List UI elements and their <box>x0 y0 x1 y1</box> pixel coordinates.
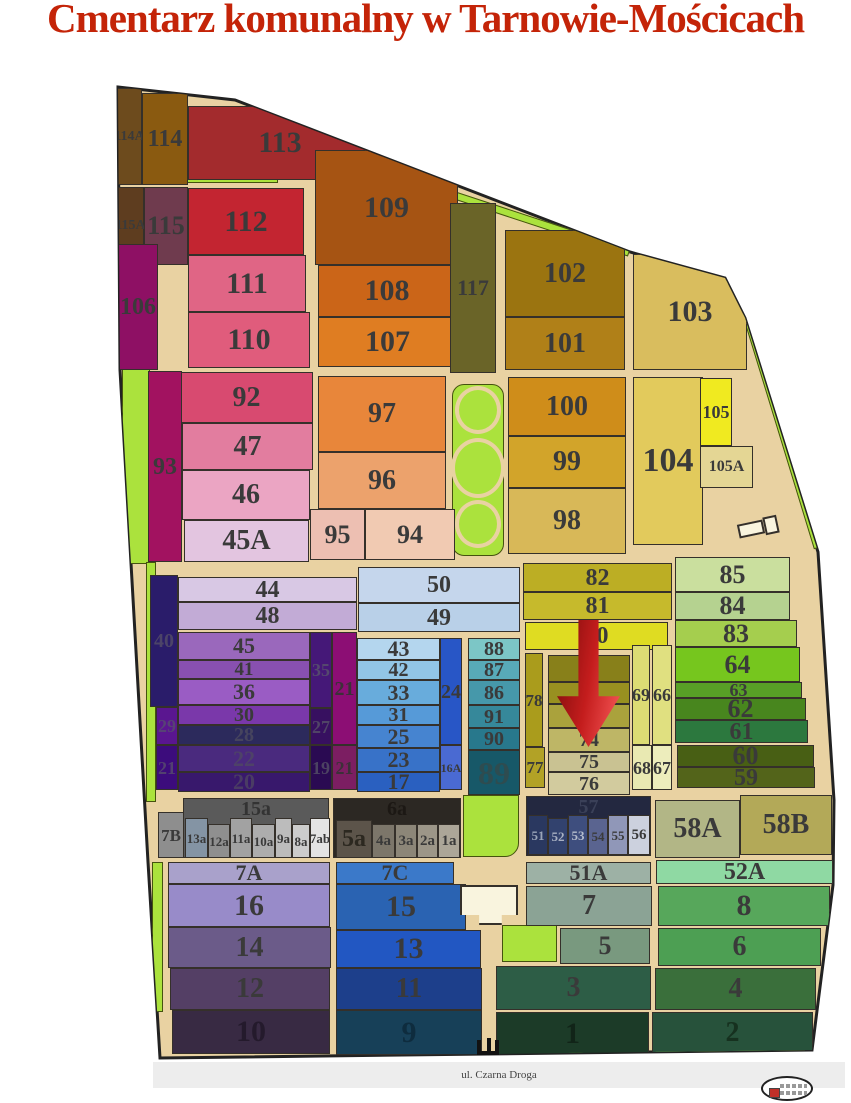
section-31[interactable]: 31 <box>357 705 440 725</box>
section-62[interactable]: 62 <box>675 698 806 720</box>
section-label: 20 <box>233 771 255 793</box>
section-label: 112 <box>224 207 267 237</box>
section-label: 23 <box>388 749 410 771</box>
section-label: 98 <box>553 507 581 535</box>
section-56[interactable]: 56 <box>628 815 650 855</box>
section-92[interactable]: 92 <box>180 372 313 423</box>
section-label: 24 <box>441 682 461 702</box>
section-label: 51A <box>570 862 608 884</box>
counter-badge-digits <box>780 1084 807 1088</box>
section-84[interactable]: 84 <box>675 592 790 620</box>
section-15[interactable]: 15 <box>336 884 466 930</box>
section-label: 22 <box>233 748 255 770</box>
section-91[interactable]: 91 <box>468 705 520 728</box>
section-label: 45A <box>222 527 270 555</box>
section-46[interactable]: 46 <box>182 470 310 520</box>
section-69[interactable]: 69 <box>632 645 650 745</box>
section-label: 69 <box>632 686 650 704</box>
section-9[interactable]: 9 <box>336 1010 482 1055</box>
section-label: 49 <box>427 606 451 630</box>
section-44[interactable]: 44 <box>178 577 357 602</box>
section-41[interactable]: 41 <box>178 660 310 679</box>
section-45[interactable]: 45 <box>178 632 310 660</box>
section-55[interactable]: 55 <box>608 815 628 855</box>
section-110[interactable]: 110 <box>188 312 310 368</box>
section-7A[interactable]: 7A <box>168 862 330 884</box>
section-13[interactable]: 13 <box>336 930 481 968</box>
section-68[interactable]: 68 <box>632 745 652 790</box>
section-114[interactable]: 114 <box>142 93 188 185</box>
section-4a[interactable]: 4a <box>372 824 395 858</box>
section-label: 103 <box>668 297 713 327</box>
section-label: 31 <box>389 705 409 725</box>
section-22[interactable]: 22 <box>178 745 310 772</box>
section-42[interactable]: 42 <box>357 660 440 680</box>
green-roundabout <box>455 386 501 434</box>
section-label: 5a <box>342 827 366 851</box>
section-label: 101 <box>544 330 586 358</box>
section-label: 13a <box>187 832 207 845</box>
section-106[interactable]: 106 <box>118 244 158 370</box>
section-96[interactable]: 96 <box>318 452 446 509</box>
section-label: 97 <box>368 400 396 428</box>
section-label: 57 <box>579 797 599 817</box>
section-label: 55 <box>612 829 625 842</box>
section-12[interactable]: 12 <box>170 968 330 1010</box>
section-label: 40 <box>154 631 174 651</box>
building <box>762 515 779 536</box>
section-86[interactable]: 86 <box>468 680 520 705</box>
section-label: 58B <box>763 811 810 839</box>
gate-icon <box>477 1040 499 1055</box>
section-7ab[interactable]: 7ab <box>310 818 330 858</box>
section-112[interactable]: 112 <box>188 188 304 255</box>
section-label: 81 <box>586 594 610 618</box>
section-16[interactable]: 16 <box>168 884 330 927</box>
section-label: 76 <box>579 774 599 794</box>
section-label: 100 <box>546 393 588 421</box>
section-label: 12a <box>209 835 229 848</box>
section-20[interactable]: 20 <box>178 772 310 792</box>
section-10[interactable]: 10 <box>172 1010 330 1054</box>
section-label: 64 <box>725 652 751 678</box>
section-2[interactable]: 2 <box>652 1012 813 1053</box>
section-label: 102 <box>544 260 586 288</box>
section-label: 115A <box>115 219 145 233</box>
section-label: 99 <box>553 448 581 476</box>
section-label: 44 <box>256 578 280 602</box>
section-label: 42 <box>389 660 409 680</box>
section-label: 3 <box>567 974 581 1002</box>
section-label: 30 <box>234 705 254 725</box>
section-label: 33 <box>388 682 410 704</box>
section-label: 27 <box>312 718 330 736</box>
section-label: 14 <box>236 934 264 962</box>
section-105[interactable]: 105 <box>700 378 732 446</box>
section-label: 78 <box>526 692 543 709</box>
section-label: 105A <box>709 459 745 475</box>
section-16A[interactable]: 16A <box>440 745 462 790</box>
section-61[interactable]: 61 <box>675 720 808 743</box>
section-5[interactable]: 5 <box>560 928 650 964</box>
section-77[interactable]: 77 <box>525 747 545 788</box>
section-label: 114A <box>114 130 144 144</box>
section-label: 15 <box>386 892 416 922</box>
section-label: 51 <box>532 829 545 842</box>
section-12a[interactable]: 12a <box>208 824 230 858</box>
section-7C[interactable]: 7C <box>336 862 454 884</box>
section-50[interactable]: 50 <box>358 567 520 603</box>
section-label: 75 <box>579 752 599 772</box>
section-label: 61 <box>730 720 754 744</box>
section-label: 10 <box>236 1017 266 1047</box>
section-76[interactable]: 76 <box>548 772 630 795</box>
section-label: 91 <box>484 707 504 727</box>
section-105A[interactable]: 105A <box>700 446 753 488</box>
section-label: 12 <box>236 975 264 1003</box>
section-52[interactable]: 52 <box>548 818 568 855</box>
section-21[interactable]: 21 <box>156 745 178 790</box>
section-label: 13 <box>394 934 424 964</box>
section-4[interactable]: 4 <box>655 968 816 1010</box>
section-10a[interactable]: 10a <box>252 824 275 858</box>
section-label: 8 <box>737 891 752 921</box>
section-60[interactable]: 60 <box>677 745 814 767</box>
section-1a[interactable]: 1a <box>438 824 460 858</box>
section-13a[interactable]: 13a <box>185 818 208 858</box>
section-45A[interactable]: 45A <box>184 520 309 562</box>
green-roundabout <box>455 500 501 548</box>
section-8a[interactable]: 8a <box>292 824 310 858</box>
section-label: 6 <box>733 933 747 961</box>
section-label: 2 <box>726 1019 740 1047</box>
section-11[interactable]: 11 <box>336 968 482 1010</box>
section-label: 50 <box>427 573 451 597</box>
section-51A[interactable]: 51A <box>526 862 651 884</box>
section-label: 15a <box>241 799 271 819</box>
building <box>460 885 518 925</box>
green-area <box>463 795 519 857</box>
green-area <box>502 925 557 962</box>
section-label: 21 <box>336 759 354 777</box>
section-21[interactable]: 21 <box>332 632 357 745</box>
section-81[interactable]: 81 <box>523 592 672 620</box>
section-label: 56 <box>632 828 647 843</box>
section-label: 107 <box>365 327 410 357</box>
section-89[interactable]: 89 <box>468 750 520 795</box>
section-label: 7B <box>161 827 181 844</box>
section-label: 45 <box>233 635 255 657</box>
section-19[interactable]: 19 <box>310 745 332 790</box>
section-label: 21 <box>335 679 355 699</box>
section-label: 108 <box>365 276 410 306</box>
section-label: 11a <box>232 832 251 845</box>
counter-badge-digits <box>780 1091 807 1095</box>
section-11a[interactable]: 11a <box>230 818 252 858</box>
section-label: 1a <box>442 834 457 849</box>
section-label: 3a <box>399 834 414 849</box>
section-64[interactable]: 64 <box>675 647 800 682</box>
section-label: 21 <box>158 759 176 777</box>
section-label: 35 <box>312 661 330 679</box>
section-label: 1 <box>565 1019 580 1049</box>
section-label: 16 <box>234 891 264 921</box>
section-label: 7 <box>582 892 596 920</box>
section-95[interactable]: 95 <box>310 509 365 560</box>
section-33[interactable]: 33 <box>357 680 440 705</box>
section-label: 90 <box>484 729 504 749</box>
section-label: 10a <box>254 835 274 848</box>
section-label: 86 <box>484 683 504 703</box>
green-roundabout <box>451 438 505 498</box>
section-label: 67 <box>653 759 671 777</box>
section-label: 9a <box>277 832 290 845</box>
section-7[interactable]: 7 <box>526 886 652 926</box>
section-29[interactable]: 29 <box>156 707 178 745</box>
section-label: 58A <box>673 815 721 843</box>
section-label: 84 <box>720 593 746 619</box>
section-label: 52A <box>724 860 765 884</box>
section-17[interactable]: 17 <box>357 772 440 792</box>
section-87[interactable]: 87 <box>468 660 520 680</box>
section-30[interactable]: 30 <box>178 705 310 725</box>
section-94[interactable]: 94 <box>365 509 455 560</box>
section-111[interactable]: 111 <box>188 255 306 312</box>
section-label: 41 <box>235 660 254 679</box>
section-21[interactable]: 21 <box>332 745 357 790</box>
section-label: 7A <box>236 862 263 884</box>
section-label: 89 <box>478 757 510 789</box>
section-85[interactable]: 85 <box>675 557 790 592</box>
section-label: 17 <box>388 771 410 793</box>
section-97[interactable]: 97 <box>318 376 446 452</box>
section-25[interactable]: 25 <box>357 725 440 748</box>
section-3a[interactable]: 3a <box>395 824 417 858</box>
section-label: 111 <box>226 269 268 299</box>
section-label: 66 <box>653 686 671 704</box>
section-label: 96 <box>368 467 396 495</box>
street-label: ul. Czarna Droga <box>461 1069 536 1081</box>
section-label: 8a <box>295 835 308 848</box>
section-51[interactable]: 51 <box>528 815 548 855</box>
section-49[interactable]: 49 <box>358 603 520 632</box>
section-48[interactable]: 48 <box>178 602 357 630</box>
section-59[interactable]: 59 <box>677 767 815 788</box>
section-label: 28 <box>234 725 254 745</box>
section-88[interactable]: 88 <box>468 638 520 660</box>
section-7B[interactable]: 7B <box>158 812 184 858</box>
section-label: 47 <box>234 433 262 461</box>
section-label: 7C <box>382 862 409 884</box>
section-label: 92 <box>233 384 261 412</box>
section-label: 82 <box>586 566 610 590</box>
section-label: 11 <box>396 975 422 1003</box>
section-82[interactable]: 82 <box>523 563 672 592</box>
section-58A[interactable]: 58A <box>655 800 740 858</box>
section-label: 104 <box>643 444 694 478</box>
section-100[interactable]: 100 <box>508 377 626 436</box>
section-label: 93 <box>153 455 177 479</box>
section-14[interactable]: 14 <box>168 927 331 968</box>
section-label: 25 <box>388 726 410 748</box>
section-6[interactable]: 6 <box>658 928 821 966</box>
section-108[interactable]: 108 <box>318 265 456 317</box>
section-35[interactable]: 35 <box>310 632 332 708</box>
section-label: 16A <box>441 762 462 774</box>
section-label: 115 <box>147 213 185 239</box>
section-24[interactable]: 24 <box>440 638 462 745</box>
section-label: 88 <box>484 639 504 659</box>
section-label: 5 <box>599 933 612 959</box>
section-label: 54 <box>592 830 605 843</box>
section-54[interactable]: 54 <box>588 818 608 855</box>
section-label: 29 <box>158 717 176 735</box>
section-label: 7ab <box>310 832 330 845</box>
section-1[interactable]: 1 <box>496 1012 649 1055</box>
counter-badge[interactable] <box>761 1076 813 1101</box>
section-label: 48 <box>256 604 280 628</box>
section-36[interactable]: 36 <box>178 679 310 705</box>
section-label: 114 <box>148 127 183 151</box>
section-label: 68 <box>633 759 651 777</box>
section-label: 59 <box>734 766 758 790</box>
section-label: 43 <box>388 638 410 660</box>
section-label: 4 <box>729 975 743 1003</box>
section-53[interactable]: 53 <box>568 815 588 855</box>
section-67[interactable]: 67 <box>652 745 672 790</box>
section-label: 87 <box>484 660 504 680</box>
section-label: 77 <box>527 759 544 776</box>
section-label: 46 <box>232 481 260 509</box>
section-107[interactable]: 107 <box>318 317 457 367</box>
section-label: 52 <box>552 830 565 843</box>
section-75[interactable]: 75 <box>548 752 630 772</box>
section-28[interactable]: 28 <box>178 725 310 745</box>
section-label: 4a <box>376 834 391 849</box>
section-label: 36 <box>233 681 255 703</box>
section-78[interactable]: 78 <box>525 653 543 747</box>
section-40[interactable]: 40 <box>150 575 178 707</box>
section-8[interactable]: 8 <box>658 886 830 926</box>
section-2a[interactable]: 2a <box>417 824 438 858</box>
section-label: 109 <box>364 193 409 223</box>
section-label: 83 <box>723 621 749 647</box>
section-117[interactable]: 117 <box>450 203 496 373</box>
section-label: 110 <box>227 325 270 355</box>
section-label: 106 <box>120 295 156 319</box>
section-label: 2a <box>420 834 435 849</box>
section-label: 105 <box>703 403 730 421</box>
building <box>737 519 765 538</box>
section-label: 9 <box>402 1018 417 1048</box>
section-52A[interactable]: 52A <box>656 860 833 884</box>
section-93[interactable]: 93 <box>148 371 182 562</box>
section-9a[interactable]: 9a <box>275 818 292 858</box>
section-27[interactable]: 27 <box>310 708 332 745</box>
street-band: ul. Czarna Droga <box>153 1062 845 1088</box>
section-104[interactable]: 104 <box>633 377 703 545</box>
section-101[interactable]: 101 <box>505 317 625 370</box>
section-label: 6a <box>387 799 407 819</box>
section-99[interactable]: 99 <box>508 436 626 488</box>
section-47[interactable]: 47 <box>182 423 313 470</box>
section-3[interactable]: 3 <box>496 966 651 1010</box>
section-66[interactable]: 66 <box>652 645 672 745</box>
section-58B[interactable]: 58B <box>740 795 832 855</box>
cemetery-map-page: Cmentarz komunalny w Tarnowie-Mościcach … <box>0 0 851 1103</box>
section-label: 95 <box>325 522 351 548</box>
section-label: 19 <box>312 759 330 777</box>
section-label: 113 <box>258 128 301 158</box>
section-label: 53 <box>572 829 585 842</box>
section-label: 85 <box>720 562 746 588</box>
section-98[interactable]: 98 <box>508 488 626 554</box>
section-label: 117 <box>457 277 489 299</box>
counter-badge-red-square <box>769 1088 780 1098</box>
section-label: 94 <box>397 522 423 548</box>
section-43[interactable]: 43 <box>357 638 440 660</box>
section-5a[interactable]: 5a <box>336 820 372 858</box>
section-114A[interactable]: 114A <box>117 88 142 185</box>
section-90[interactable]: 90 <box>468 728 520 750</box>
section-83[interactable]: 83 <box>675 620 797 647</box>
